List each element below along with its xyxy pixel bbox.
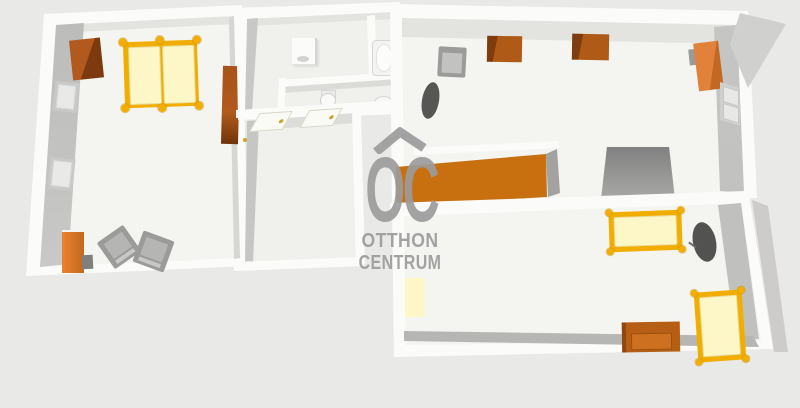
door-handle-icon <box>278 119 284 123</box>
door-handle-icon <box>243 138 247 142</box>
double-bed <box>123 40 199 109</box>
bedpost <box>119 38 127 46</box>
single-bed <box>608 210 682 253</box>
window-pane <box>56 84 76 110</box>
watermark-line2: CENTRUM <box>350 252 449 275</box>
watermark: OC OTTHON CENTRUM <box>338 127 462 277</box>
bedpost <box>156 36 164 44</box>
door-handle-icon <box>328 115 334 119</box>
tv-stand <box>82 255 94 270</box>
washing-machine <box>292 38 317 65</box>
single-bed <box>694 289 747 362</box>
storage-box <box>572 34 609 61</box>
armchair-seat <box>441 52 462 73</box>
watermark-line1: OTTHON <box>345 230 454 253</box>
area-rug <box>601 147 675 199</box>
sofa-seat <box>631 333 672 351</box>
window <box>720 82 740 126</box>
dresser <box>62 230 84 273</box>
bathtub-basin <box>376 44 392 72</box>
bedpost <box>605 209 612 216</box>
window <box>47 157 75 191</box>
mattress <box>699 295 741 358</box>
mattress <box>162 45 196 104</box>
window <box>52 81 79 113</box>
floor-mat <box>405 278 425 317</box>
mattress <box>128 46 162 105</box>
washing-machine-door <box>297 56 309 62</box>
mattress <box>613 215 677 247</box>
floorplan-canvas: OC OTTHON CENTRUM <box>0 0 800 408</box>
window-pane <box>51 160 73 188</box>
tall-cabinet <box>221 66 240 144</box>
watermark-logo-text: OC <box>365 153 434 227</box>
wardrobe <box>69 37 104 80</box>
bedpost <box>690 289 697 296</box>
bedpost <box>742 355 749 362</box>
bedpost <box>695 358 702 365</box>
storage-box <box>487 36 522 63</box>
armchair <box>437 46 467 77</box>
sofa-chest <box>622 321 681 352</box>
